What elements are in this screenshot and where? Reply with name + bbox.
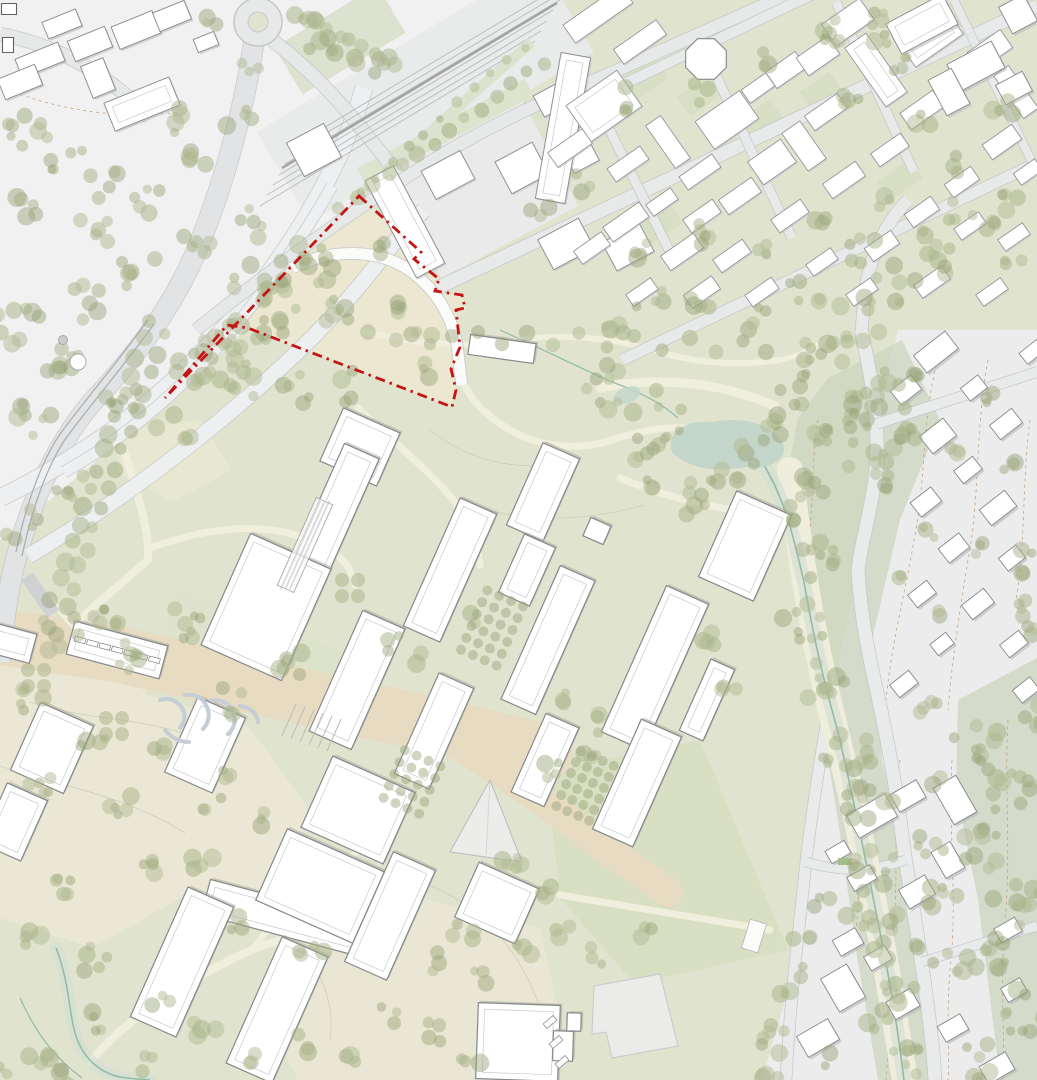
tree	[922, 116, 939, 133]
tree	[875, 14, 889, 28]
tree	[582, 762, 592, 772]
tree	[816, 550, 826, 560]
tree	[295, 370, 305, 380]
tree	[577, 773, 587, 783]
tree	[551, 801, 561, 811]
tree	[497, 649, 507, 659]
tree	[949, 732, 960, 743]
tree	[976, 743, 986, 753]
tree	[841, 789, 853, 801]
tree	[599, 783, 609, 793]
tree	[907, 272, 924, 289]
tree	[815, 348, 827, 360]
tree	[684, 476, 697, 489]
tree	[1016, 897, 1032, 913]
tree	[962, 1042, 972, 1052]
tree	[21, 922, 39, 940]
tree	[947, 196, 958, 207]
tree	[301, 1041, 315, 1055]
tree	[655, 343, 668, 356]
tree	[814, 673, 823, 682]
tree	[572, 326, 585, 339]
tree	[115, 443, 127, 455]
tree	[471, 1054, 490, 1073]
tree	[384, 781, 394, 791]
tree	[927, 957, 939, 969]
tree	[998, 201, 1016, 219]
tree	[159, 328, 170, 339]
tree	[796, 352, 812, 368]
tree	[694, 488, 709, 503]
tree	[675, 426, 684, 435]
tree	[94, 501, 108, 515]
tree	[16, 140, 28, 152]
tree	[436, 115, 444, 123]
tree	[102, 952, 113, 963]
tree	[392, 1007, 402, 1017]
tree	[858, 920, 870, 932]
tree	[768, 406, 786, 424]
tree	[627, 329, 641, 343]
tree	[810, 657, 823, 670]
tree	[774, 384, 786, 396]
tree	[377, 236, 391, 250]
tree	[136, 329, 153, 346]
tree	[997, 189, 1008, 200]
tree	[100, 234, 115, 249]
tree	[808, 476, 822, 490]
tree	[102, 216, 113, 227]
tree	[485, 644, 495, 654]
tree	[536, 886, 555, 905]
tree	[523, 203, 538, 218]
tree	[71, 628, 84, 641]
tree	[1000, 1008, 1011, 1019]
tree	[102, 799, 117, 814]
tree	[587, 751, 597, 761]
tree	[77, 470, 90, 483]
tree	[588, 778, 598, 788]
tree	[172, 107, 190, 125]
tree	[819, 423, 834, 438]
tree	[875, 792, 894, 811]
tree	[844, 239, 855, 250]
tree	[413, 780, 423, 790]
tree	[83, 169, 98, 184]
tree	[675, 404, 687, 416]
tree	[482, 585, 492, 595]
tree	[486, 69, 494, 77]
tree	[870, 324, 887, 341]
tree	[949, 888, 964, 903]
tree	[924, 776, 942, 794]
tree	[593, 727, 603, 737]
tree	[90, 228, 102, 240]
tree	[730, 682, 743, 695]
tree	[799, 596, 815, 612]
tree	[803, 931, 816, 944]
tree	[852, 901, 863, 912]
tree	[92, 191, 106, 205]
tree	[848, 861, 866, 879]
tree	[581, 383, 593, 395]
tree	[474, 103, 489, 118]
tree	[874, 201, 885, 212]
tree	[430, 773, 440, 783]
tree	[585, 941, 597, 953]
tree	[825, 687, 837, 699]
tree	[155, 737, 172, 754]
tree	[892, 378, 906, 392]
tree	[848, 437, 859, 448]
tree	[863, 783, 877, 797]
tree	[468, 650, 478, 660]
tree	[237, 58, 248, 69]
tree	[757, 46, 769, 58]
tree	[2, 118, 15, 131]
tree	[451, 96, 462, 107]
tree	[1000, 258, 1012, 270]
tree	[241, 105, 251, 115]
tree	[862, 754, 878, 770]
tree	[901, 1060, 910, 1069]
tree	[61, 887, 74, 900]
tree	[889, 1047, 898, 1056]
tree	[309, 941, 320, 952]
tree	[895, 297, 904, 306]
tree	[85, 483, 97, 495]
tree	[418, 130, 428, 140]
tree	[23, 778, 36, 791]
tree	[41, 592, 58, 609]
tree	[480, 655, 490, 665]
tree	[53, 360, 67, 374]
tree	[40, 641, 58, 659]
tree	[834, 354, 850, 370]
tree	[550, 929, 568, 947]
tree	[420, 368, 438, 386]
tree	[394, 631, 404, 641]
tree	[197, 156, 214, 173]
tree	[304, 392, 314, 402]
tree	[693, 218, 704, 229]
tree	[971, 753, 982, 764]
tree	[236, 687, 247, 698]
tree	[991, 964, 1004, 977]
tree	[888, 852, 898, 862]
tree	[244, 367, 263, 386]
tree	[609, 761, 619, 771]
tree	[649, 383, 664, 398]
tree	[228, 381, 242, 395]
tree	[871, 272, 883, 284]
tree	[351, 573, 365, 587]
tree	[59, 598, 77, 616]
tree	[445, 928, 460, 943]
tree	[576, 746, 586, 756]
tree	[216, 681, 230, 695]
tree	[408, 792, 418, 802]
tree	[898, 401, 912, 415]
tree	[902, 1045, 914, 1057]
tree	[7, 188, 26, 207]
tree	[799, 337, 811, 349]
tree	[472, 609, 482, 619]
tree	[492, 661, 502, 671]
tree	[1013, 565, 1030, 582]
tree	[407, 654, 426, 673]
tree	[758, 434, 770, 446]
tree	[1016, 254, 1028, 266]
tree	[291, 304, 301, 314]
tree	[77, 146, 87, 156]
small-building	[3, 38, 14, 53]
tree	[891, 570, 906, 585]
tree	[992, 831, 1001, 840]
tree	[134, 385, 152, 403]
tree	[461, 633, 471, 643]
tree	[245, 204, 254, 213]
tree	[52, 485, 62, 495]
tree	[842, 460, 855, 473]
tree	[804, 571, 817, 584]
tree	[975, 536, 989, 550]
tree	[248, 391, 258, 401]
tree	[50, 874, 63, 887]
tree	[396, 786, 406, 796]
tree	[187, 241, 199, 253]
tree	[880, 980, 891, 991]
tree	[484, 614, 494, 624]
tree	[478, 626, 488, 636]
tree	[100, 605, 110, 615]
tree	[459, 112, 470, 123]
tree	[187, 627, 196, 636]
tree	[360, 324, 376, 340]
tree	[770, 1044, 788, 1062]
tree	[406, 763, 416, 773]
tree	[914, 1044, 924, 1054]
tree	[341, 1046, 360, 1065]
tree	[91, 1026, 101, 1036]
tree	[603, 373, 614, 384]
tree	[584, 816, 594, 826]
tree	[786, 931, 802, 947]
tree	[811, 534, 829, 552]
tree	[786, 513, 801, 528]
tree	[593, 767, 603, 777]
tree	[959, 852, 973, 866]
tree	[115, 659, 125, 669]
tree	[12, 332, 28, 348]
tree	[7, 132, 16, 141]
tree	[146, 1052, 157, 1063]
tree	[133, 200, 147, 214]
tree	[99, 711, 113, 725]
tree	[69, 556, 86, 573]
tree	[554, 758, 563, 767]
tree	[227, 281, 241, 295]
tree	[229, 273, 239, 283]
tree	[815, 612, 826, 623]
tree	[920, 895, 936, 911]
tree	[121, 281, 132, 292]
tree	[335, 573, 349, 587]
tree	[657, 286, 667, 296]
tree	[513, 613, 523, 623]
tree	[844, 421, 858, 435]
tree	[31, 513, 44, 526]
tree	[144, 365, 159, 380]
tree	[489, 603, 499, 613]
tree	[594, 794, 604, 804]
tree	[44, 772, 56, 784]
tree	[772, 426, 789, 443]
tree	[877, 477, 893, 493]
tree	[391, 798, 401, 808]
tree	[917, 225, 928, 236]
tree	[495, 337, 509, 351]
tree	[108, 410, 121, 423]
tree	[218, 770, 233, 785]
tree	[829, 14, 841, 26]
tree	[945, 158, 961, 174]
tree	[494, 591, 504, 601]
tree	[642, 238, 652, 248]
tree	[379, 793, 389, 803]
tree	[199, 803, 212, 816]
tree	[165, 406, 183, 424]
tree	[942, 948, 953, 959]
tree	[29, 431, 38, 440]
tree	[1006, 454, 1024, 472]
tree	[654, 402, 664, 412]
tree	[762, 251, 771, 260]
octagon-building	[686, 39, 727, 80]
tree	[92, 283, 106, 297]
tree	[8, 408, 27, 427]
tree	[599, 357, 616, 374]
tree	[632, 433, 643, 444]
tree	[389, 769, 399, 779]
tree	[943, 214, 955, 226]
tree	[838, 676, 850, 688]
tree	[988, 852, 1005, 869]
tree	[42, 132, 54, 144]
tree	[920, 848, 931, 859]
tree	[907, 981, 920, 994]
tree	[911, 1069, 922, 1080]
tree	[876, 935, 892, 951]
tree	[147, 858, 159, 870]
tree	[248, 1047, 262, 1061]
tree	[335, 589, 349, 603]
tree	[1009, 878, 1023, 892]
tree	[956, 828, 973, 845]
tree	[459, 1055, 471, 1067]
tree	[620, 105, 630, 115]
tree	[556, 790, 566, 800]
tree	[37, 663, 51, 677]
tree	[874, 875, 892, 893]
tree	[970, 719, 983, 732]
tree	[831, 297, 849, 315]
tree	[774, 609, 792, 627]
tree	[845, 809, 862, 826]
tree	[994, 105, 1005, 116]
tree	[651, 296, 661, 306]
tree	[792, 607, 802, 617]
tree	[47, 165, 56, 174]
tree	[561, 779, 571, 789]
tree	[709, 345, 724, 360]
tree	[597, 959, 606, 968]
tree	[291, 1028, 305, 1042]
tree	[897, 425, 908, 436]
tree	[794, 970, 809, 985]
tree	[135, 1064, 149, 1078]
tree	[783, 499, 798, 514]
tree	[843, 395, 862, 414]
tree	[471, 325, 485, 339]
tree	[716, 680, 730, 694]
tree	[859, 733, 874, 748]
tree	[829, 736, 843, 750]
tree	[241, 359, 251, 369]
tree	[464, 931, 481, 948]
tree	[477, 597, 487, 607]
tree	[521, 44, 529, 52]
tree	[700, 81, 716, 97]
tree	[617, 79, 633, 95]
tree	[496, 620, 506, 630]
tree	[216, 793, 227, 804]
tree	[571, 168, 582, 179]
tree	[971, 549, 981, 559]
tree	[932, 604, 945, 617]
tree	[396, 158, 410, 172]
tree	[538, 57, 551, 70]
tree	[107, 462, 123, 478]
tree	[119, 386, 133, 400]
tree	[190, 612, 199, 621]
tree	[103, 181, 116, 194]
tree	[380, 49, 398, 67]
tree	[880, 30, 890, 40]
tree	[109, 165, 126, 182]
tree	[225, 341, 241, 357]
tree	[519, 325, 536, 342]
tree	[980, 392, 992, 404]
tree	[424, 338, 436, 350]
tree	[148, 346, 166, 364]
tree	[821, 1061, 830, 1070]
tree	[822, 1045, 839, 1062]
tree	[20, 939, 31, 950]
tree	[858, 1013, 877, 1032]
tree	[490, 632, 500, 642]
tree	[286, 6, 304, 24]
tree	[423, 1017, 434, 1028]
tree	[411, 326, 422, 337]
tree	[922, 879, 940, 897]
tree	[37, 679, 51, 693]
tree	[65, 875, 75, 885]
tree	[807, 633, 817, 643]
tree	[420, 797, 430, 807]
tree	[148, 419, 165, 436]
tree	[292, 644, 311, 663]
